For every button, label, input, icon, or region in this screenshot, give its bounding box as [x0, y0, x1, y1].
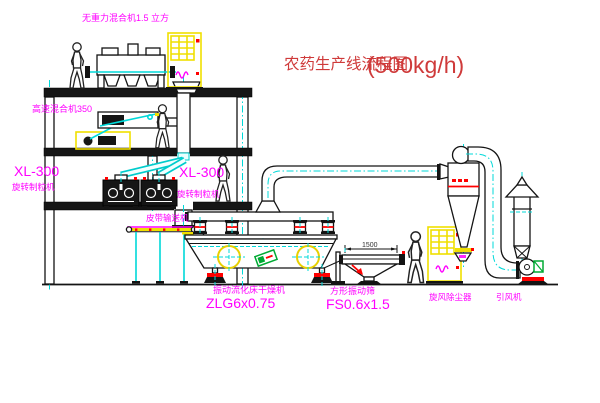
dryer-hood — [188, 212, 333, 221]
cyclone-label: 旋风除尘器 — [429, 292, 472, 302]
feed-duct — [177, 93, 190, 153]
floor-slab-top — [44, 88, 252, 97]
belt-conveyor-label: 皮带输送机 — [146, 213, 189, 223]
dryer-name-label: 振动流化床干燥机 — [213, 284, 285, 295]
granulator-right-name: 旋转制粒机 — [177, 189, 220, 199]
high-speed-mixer-label: 高速混合机350 — [32, 103, 92, 114]
screen-name-label: 方形振动筛 — [330, 285, 375, 296]
granulator-left-model: XL-300 — [14, 163, 59, 179]
gravity-mixer-label: 无重力混合机1.5 立方 — [82, 12, 169, 23]
process-flow-diagram: 无重力混合机1.5 立方 农药生产线流程图 (500kg/h) 高速混合机350… — [0, 0, 600, 403]
fan-label: 引风机 — [496, 292, 522, 302]
floor-slab-second — [44, 148, 252, 156]
cyclone-outlet-elbow — [453, 147, 470, 164]
dryer-model-label: ZLG6x0.75 — [206, 295, 275, 311]
diagram-canvas: 无重力混合机1.5 立方 农药生产线流程图 (500kg/h) 高速混合机350… — [0, 0, 600, 403]
granulator-right-model: XL-300 — [179, 164, 224, 180]
screen-dimension-label: 1500 — [362, 242, 378, 249]
induced-draft-fan — [518, 259, 548, 284]
diagram-capacity: (500kg/h) — [367, 52, 464, 78]
screen-model-label: FS0.6x1.5 — [326, 296, 390, 312]
granulator-left-name: 旋转制粒机 — [12, 182, 55, 192]
